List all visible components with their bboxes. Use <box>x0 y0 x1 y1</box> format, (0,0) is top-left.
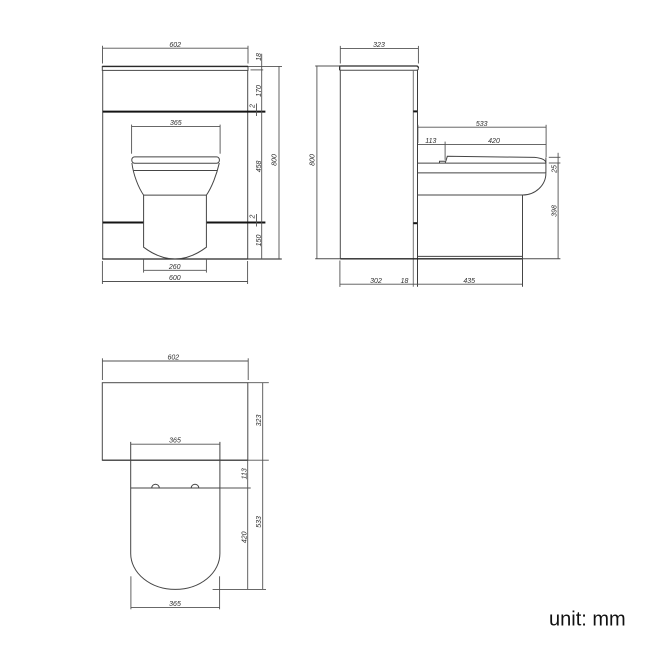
svg-text:260: 260 <box>168 264 181 271</box>
svg-text:113: 113 <box>241 468 248 479</box>
svg-text:365: 365 <box>169 438 181 445</box>
svg-text:602: 602 <box>167 354 179 361</box>
svg-text:420: 420 <box>488 138 500 145</box>
svg-text:170: 170 <box>256 85 263 97</box>
svg-text:unit: mm: unit: mm <box>549 609 626 631</box>
svg-text:365: 365 <box>169 601 181 608</box>
svg-text:2: 2 <box>250 214 257 219</box>
svg-text:18: 18 <box>256 53 263 61</box>
svg-text:800: 800 <box>272 154 279 166</box>
svg-text:323: 323 <box>256 415 263 427</box>
svg-text:800: 800 <box>309 154 316 166</box>
svg-text:458: 458 <box>256 160 263 172</box>
svg-text:600: 600 <box>169 275 181 282</box>
svg-text:113: 113 <box>425 138 436 145</box>
svg-text:420: 420 <box>241 531 248 543</box>
svg-text:150: 150 <box>256 235 263 247</box>
svg-text:435: 435 <box>463 278 475 285</box>
svg-text:2: 2 <box>250 104 257 109</box>
svg-text:533: 533 <box>476 121 488 128</box>
svg-text:18: 18 <box>401 278 409 285</box>
svg-text:398: 398 <box>551 205 558 217</box>
svg-text:323: 323 <box>373 42 385 49</box>
svg-text:25: 25 <box>551 165 558 174</box>
svg-text:533: 533 <box>256 516 263 528</box>
svg-text:365: 365 <box>170 120 182 127</box>
svg-text:602: 602 <box>169 42 181 49</box>
svg-text:302: 302 <box>370 278 382 285</box>
